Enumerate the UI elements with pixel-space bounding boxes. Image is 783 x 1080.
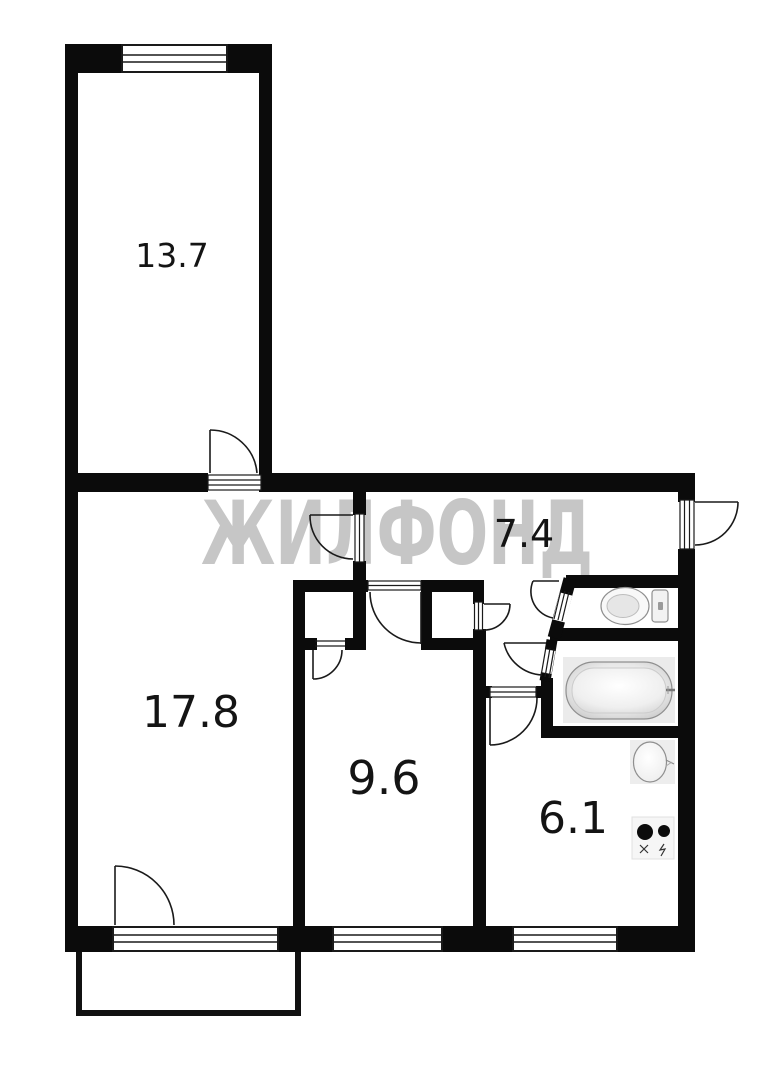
label-room-7-4: 7.4: [494, 512, 554, 556]
window-room-13-7: [122, 45, 227, 72]
label-room-9-6: 9.6: [347, 751, 420, 805]
label-room-13-7: 13.7: [135, 236, 208, 275]
balcony-window-block: [113, 927, 278, 951]
bathtub-icon: [563, 657, 675, 723]
label-room-6-1: 6.1: [538, 793, 608, 844]
floorplan-canvas: ЖИЛФОНД: [0, 0, 783, 1080]
stove-icon: [632, 817, 674, 859]
floorplan-page: ЖИЛФОНД: [0, 0, 783, 1080]
window-kitchen: [513, 927, 617, 951]
toilet-icon: [601, 588, 668, 625]
window-room-9-6: [333, 927, 442, 951]
label-room-17-8: 17.8: [142, 687, 240, 738]
kitchen-sink-icon: [630, 740, 675, 784]
